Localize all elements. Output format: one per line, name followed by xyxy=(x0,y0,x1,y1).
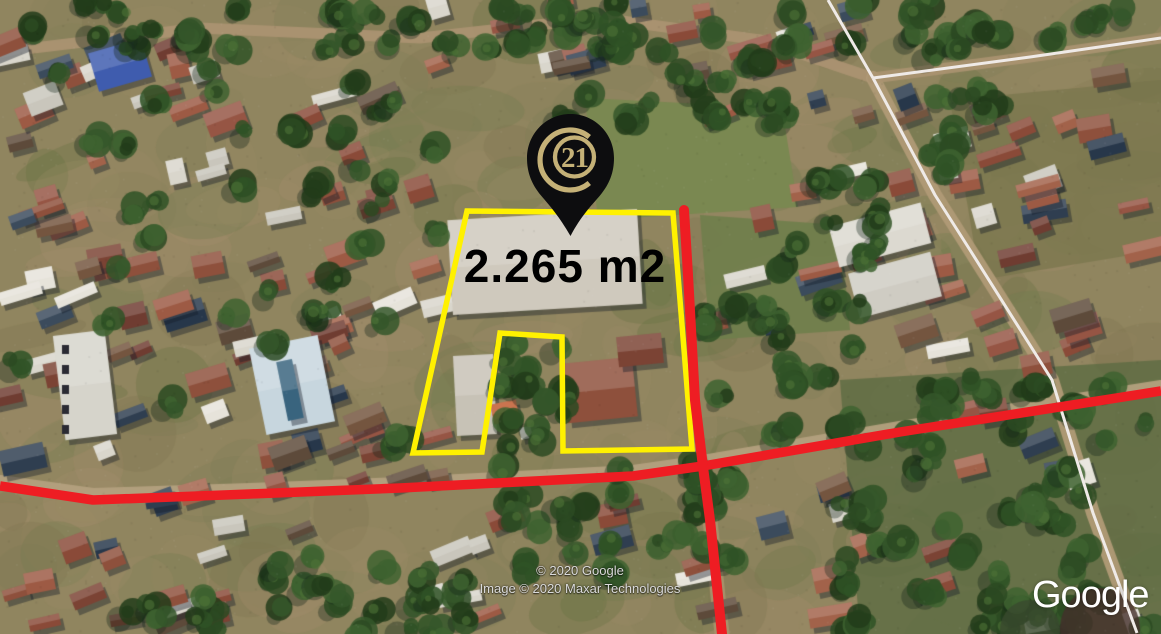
map-attribution-line2: Image © 2020 Maxar Technologies xyxy=(450,580,710,598)
map-attribution: © 2020 Google Image © 2020 Maxar Technol… xyxy=(450,562,710,598)
parcel-area-label: 2.265 m2 xyxy=(464,243,666,289)
google-logo-watermark: Google xyxy=(1032,576,1149,614)
map-attribution-line1: © 2020 Google xyxy=(450,562,710,580)
satellite-imagery[interactable] xyxy=(0,0,1161,634)
google-earth-map-view: 21 2.265 m2 © 2020 Google Image © 2020 M… xyxy=(0,0,1161,634)
